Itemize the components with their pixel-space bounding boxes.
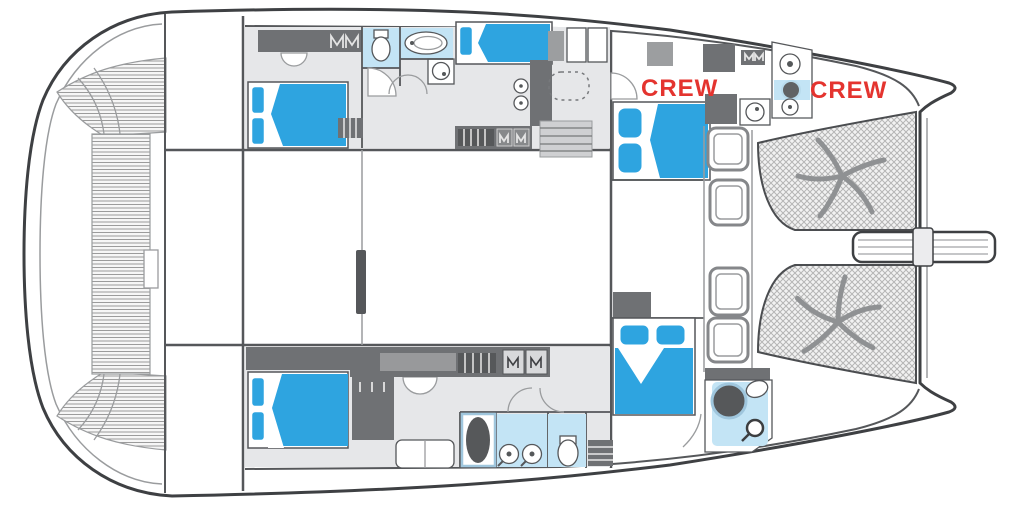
sink: [526, 350, 547, 374]
crew-label-port: CREW: [641, 75, 718, 102]
toilet-icon: [372, 30, 390, 61]
crew-label-starboard: CREW: [810, 77, 887, 104]
window: [548, 31, 564, 61]
pillow: [619, 324, 650, 346]
cabinet: [567, 28, 586, 62]
bathtub-icon: [405, 32, 447, 54]
washing-machine-icon: [428, 59, 454, 84]
windlass-icon: [740, 99, 770, 125]
vanity-twin-sinks: [497, 414, 547, 467]
stove: [458, 353, 496, 373]
locker: [705, 368, 770, 380]
deck-hatch: [710, 268, 748, 315]
sink: [503, 350, 524, 374]
counter-top: [380, 353, 456, 371]
pillow: [617, 107, 643, 139]
deck-plan-canvas: CREW CREW: [0, 0, 1024, 512]
wardrobe: [258, 30, 326, 52]
fridge: [530, 60, 552, 126]
shower-tray-icon: [466, 417, 490, 463]
pillow: [251, 411, 265, 441]
pillow: [655, 324, 686, 346]
pillow: [459, 26, 473, 56]
double-bed: [248, 372, 348, 448]
wardrobe: [246, 347, 350, 370]
deck-hatch: [710, 180, 748, 225]
deck-hatch: [708, 318, 748, 362]
mast-post: [356, 250, 366, 314]
single-bed: [456, 22, 552, 64]
berth-fore-port: [456, 22, 552, 64]
companionway-steps: [540, 121, 592, 157]
pillow: [251, 86, 265, 114]
crew-double-bed: [613, 102, 710, 180]
bowsprit-joint: [913, 228, 933, 266]
pillow: [251, 377, 265, 407]
locker: [703, 44, 735, 72]
deck-hatch: [708, 128, 748, 170]
shower-basin-icon: [712, 384, 746, 418]
double-bed: [248, 82, 348, 148]
teak-aft-walkway: [92, 134, 150, 374]
crew-head-starboard: [705, 368, 772, 452]
settee: [396, 440, 454, 468]
pillow: [617, 142, 643, 174]
crew-double-bed: [613, 318, 695, 415]
toilet-room: [548, 414, 586, 467]
cabinet: [588, 28, 607, 62]
wardrobe-tall: [352, 374, 394, 440]
wardrobe: [613, 292, 651, 318]
companionway-steps: [588, 440, 613, 466]
shower-stall: [462, 414, 495, 466]
galley-starboard: [350, 347, 550, 377]
pillow: [251, 117, 265, 145]
transom-gate: [144, 250, 158, 288]
crew-head-port: [772, 42, 812, 118]
window: [647, 42, 673, 66]
sink-icon: [782, 81, 800, 99]
bowsprit: [853, 228, 995, 266]
